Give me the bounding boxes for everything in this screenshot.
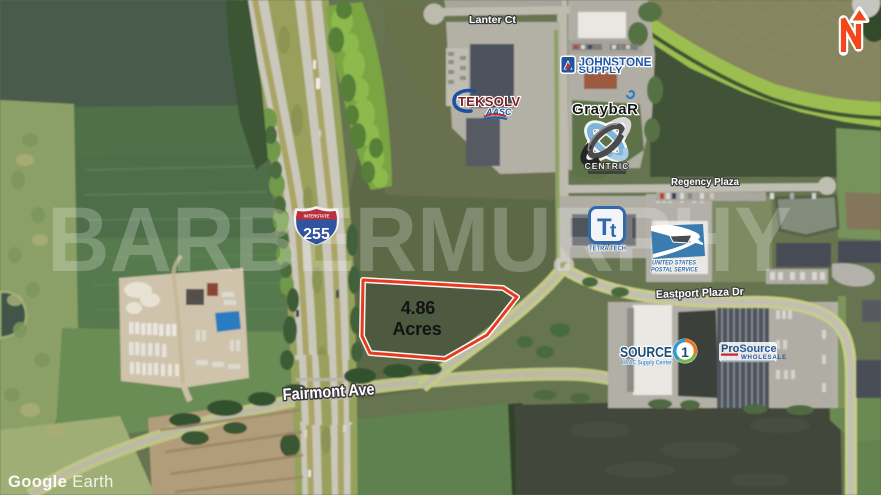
svg-text:WHOLESALE: WHOLESALE <box>741 354 787 361</box>
svg-text:INTERSTATE: INTERSTATE <box>304 214 330 219</box>
svg-text:Regency Plaza: Regency Plaza <box>671 176 739 188</box>
svg-text:UNITED STATES: UNITED STATES <box>652 260 696 267</box>
svg-text:t: t <box>610 221 617 242</box>
svg-text:4.86: 4.86 <box>401 298 435 318</box>
svg-text:Lanter Ct: Lanter Ct <box>469 14 517 26</box>
svg-text:HVAC Supply Center: HVAC Supply Center <box>622 360 672 367</box>
svg-text:255: 255 <box>303 226 330 243</box>
svg-text:CENTRIC: CENTRIC <box>585 161 630 171</box>
svg-text:TETRA TECH: TETRA TECH <box>589 246 626 253</box>
svg-text:1: 1 <box>681 344 689 360</box>
svg-text:GraybaR: GraybaR <box>572 101 638 118</box>
svg-text:SUPPLY: SUPPLY <box>579 65 624 76</box>
svg-text:Acres: Acres <box>392 319 441 339</box>
svg-text:POSTAL SERVICE: POSTAL SERVICE <box>651 267 698 274</box>
svg-text:Google Earth: Google Earth <box>8 473 114 491</box>
